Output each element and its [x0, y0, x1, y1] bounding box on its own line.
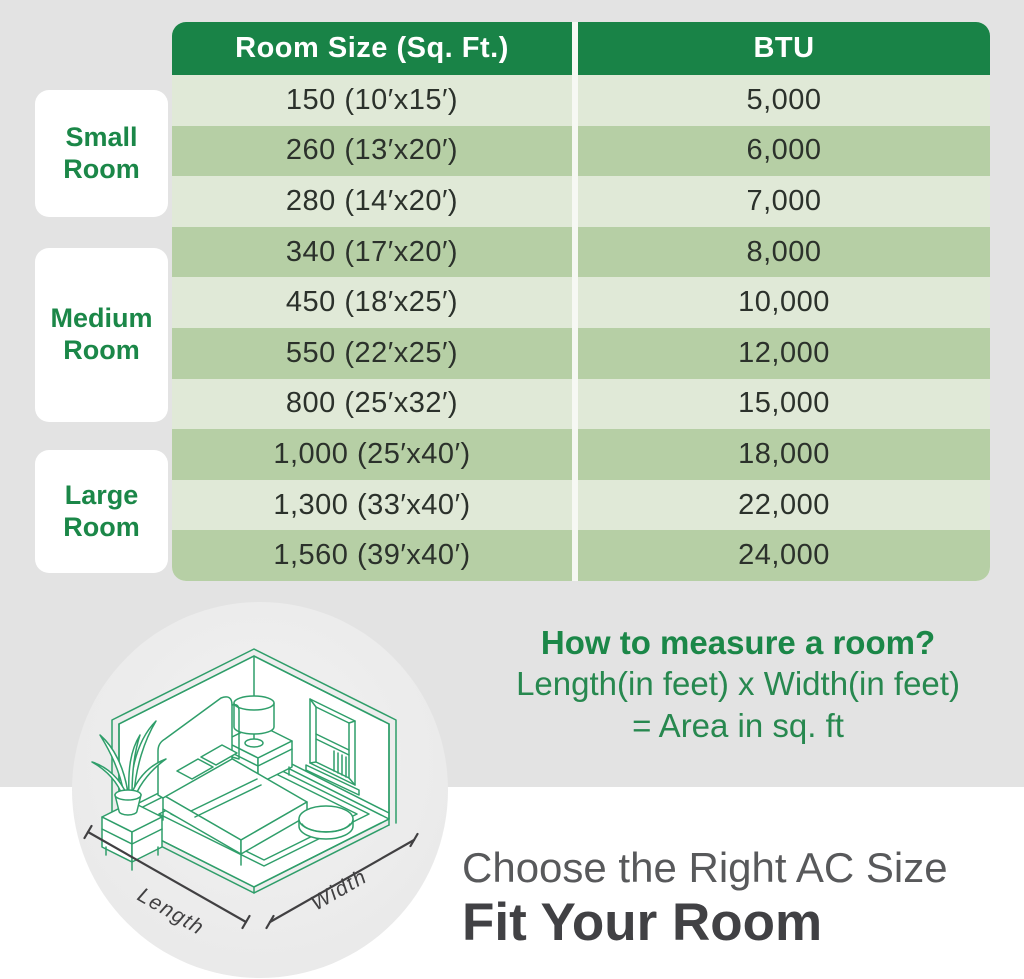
group-label-line: Large [65, 480, 139, 512]
table-cell-size: 260 (13′x20′) [172, 126, 572, 177]
room-illustration: Length Width [64, 599, 448, 979]
measure-formula-line2: = Area in sq. ft [452, 705, 1024, 747]
table-cell-size: 1,560 (39′x40′) [172, 530, 572, 581]
btu-table: Room Size (Sq. Ft.) BTU 150 (10′x15′) 5,… [172, 22, 990, 581]
column-header-btu: BTU [578, 22, 990, 75]
table-cell-size: 450 (18′x25′) [172, 277, 572, 328]
table-cell-size: 1,000 (25′x40′) [172, 429, 572, 480]
table-cell-size: 1,300 (33′x40′) [172, 480, 572, 531]
infographic: Room Size (Sq. Ft.) BTU 150 (10′x15′) 5,… [0, 0, 1024, 976]
group-label-line: Room [63, 512, 140, 544]
group-label-large-room: Large Room [35, 450, 168, 573]
footer-headline: Choose the Right AC Size Fit Your Room [462, 845, 1022, 951]
pouf-icon [299, 806, 353, 839]
group-label-line: Room [63, 154, 140, 186]
table-cell-btu: 24,000 [578, 530, 990, 581]
table-cell-btu: 7,000 [578, 176, 990, 227]
table-cell-size: 550 (22′x25′) [172, 328, 572, 379]
table-cell-btu: 18,000 [578, 429, 990, 480]
table-cell-btu: 10,000 [578, 277, 990, 328]
table-cell-size: 340 (17′x20′) [172, 227, 572, 278]
footer-title: Fit Your Room [462, 895, 1022, 951]
footer-subtitle: Choose the Right AC Size [462, 845, 1022, 891]
group-label-small-room: Small Room [35, 90, 168, 217]
table-cell-btu: 22,000 [578, 480, 990, 531]
table-cell-btu: 5,000 [578, 75, 990, 126]
group-label-line: Room [63, 335, 140, 367]
group-label-medium-room: Medium Room [35, 248, 168, 422]
measure-title: How to measure a room? [452, 622, 1024, 663]
table-cell-btu: 8,000 [578, 227, 990, 278]
table-cell-size: 150 (10′x15′) [172, 75, 572, 126]
table-cell-size: 280 (14′x20′) [172, 176, 572, 227]
group-label-line: Small [65, 122, 137, 154]
table-cell-size: 800 (25′x32′) [172, 379, 572, 430]
measure-formula-line1: Length(in feet) x Width(in feet) [452, 663, 1024, 705]
table-cell-btu: 12,000 [578, 328, 990, 379]
measure-section: How to measure a room? Length(in feet) x… [452, 622, 1024, 746]
group-label-line: Medium [50, 303, 152, 335]
table-cell-btu: 15,000 [578, 379, 990, 430]
table-cell-btu: 6,000 [578, 126, 990, 177]
column-header-room-size: Room Size (Sq. Ft.) [172, 22, 572, 75]
